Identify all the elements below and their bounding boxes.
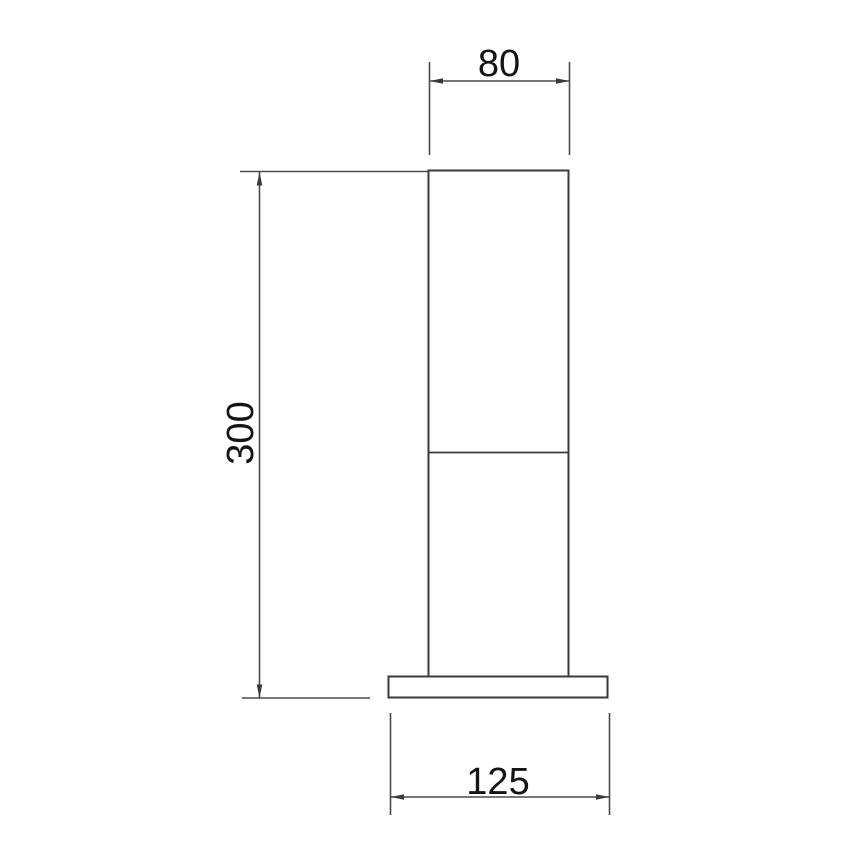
lamp-outline xyxy=(389,171,608,698)
arrowhead-right-icon xyxy=(556,78,570,84)
arrowhead-down-icon xyxy=(257,685,263,699)
dimension-label-height: 300 xyxy=(220,401,262,464)
dimension-height: 300 xyxy=(220,172,429,699)
arrowhead-right-icon xyxy=(596,794,610,800)
lamp-column-body xyxy=(429,171,569,677)
arrowhead-up-icon xyxy=(257,172,263,186)
dimension-label-base-width: 125 xyxy=(466,761,529,803)
technical-drawing-page: 80 300 125 xyxy=(0,0,868,868)
arrowhead-left-icon xyxy=(391,794,405,800)
lamp-base-plate xyxy=(389,677,608,698)
dimension-label-top-width: 80 xyxy=(478,43,520,85)
dimension-base-width: 125 xyxy=(391,713,610,815)
dimension-top-width: 80 xyxy=(430,43,570,155)
arrowhead-left-icon xyxy=(430,78,444,84)
technical-drawing-canvas: 80 300 125 xyxy=(0,0,868,868)
